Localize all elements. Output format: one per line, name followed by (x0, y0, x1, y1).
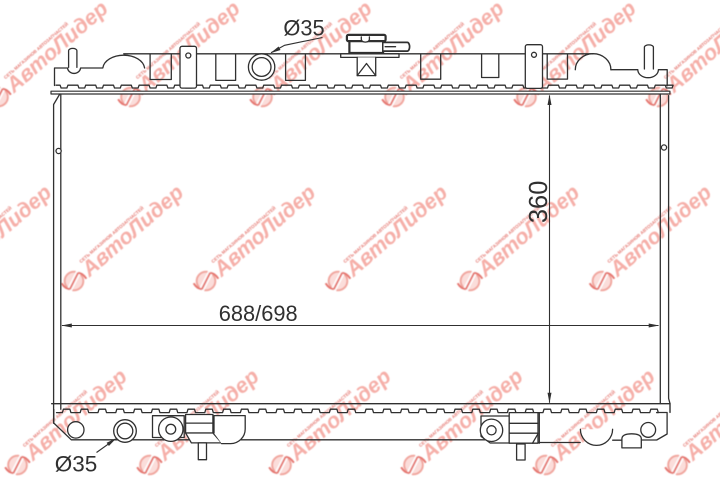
svg-text:360: 360 (525, 181, 553, 224)
svg-text:Ø35: Ø35 (55, 452, 98, 477)
svg-text:688/698: 688/698 (219, 301, 298, 326)
svg-text:Ø35: Ø35 (283, 15, 324, 40)
